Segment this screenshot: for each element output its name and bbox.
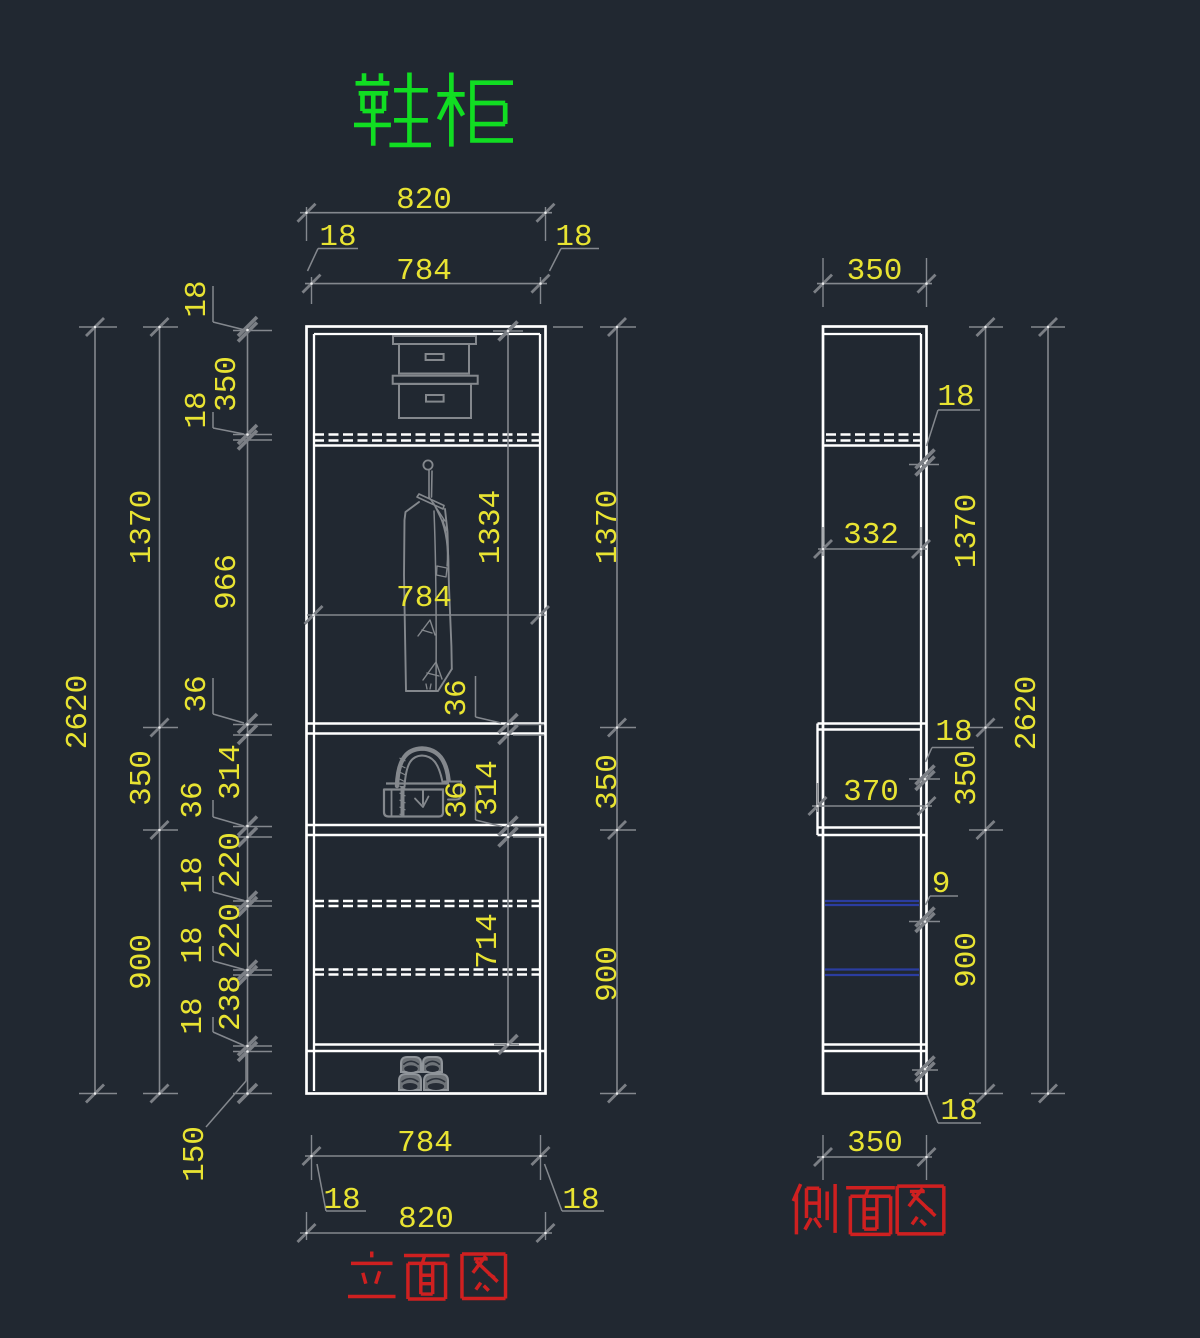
svg-text:370: 370 xyxy=(843,775,899,810)
svg-text:18: 18 xyxy=(176,997,211,1034)
svg-text:18: 18 xyxy=(176,856,211,893)
svg-text:332: 332 xyxy=(843,518,899,553)
svg-text:18: 18 xyxy=(940,1094,977,1129)
svg-text:36: 36 xyxy=(180,675,215,712)
svg-text:784: 784 xyxy=(396,581,452,616)
svg-text:714: 714 xyxy=(471,913,506,969)
svg-text:36: 36 xyxy=(440,679,475,716)
svg-text:820: 820 xyxy=(398,1202,454,1237)
svg-text:350: 350 xyxy=(950,750,985,806)
svg-text:350: 350 xyxy=(591,754,626,810)
svg-text:1370: 1370 xyxy=(950,494,985,568)
svg-text:18: 18 xyxy=(935,715,972,750)
svg-text:36: 36 xyxy=(441,781,476,818)
svg-text:350: 350 xyxy=(210,356,245,412)
svg-text:784: 784 xyxy=(397,1126,453,1161)
svg-text:820: 820 xyxy=(396,183,452,218)
svg-text:18: 18 xyxy=(323,1183,360,1218)
svg-text:900: 900 xyxy=(125,934,160,990)
svg-text:350: 350 xyxy=(847,1126,903,1161)
svg-text:2620: 2620 xyxy=(61,675,96,749)
svg-text:900: 900 xyxy=(950,932,985,988)
svg-text:350: 350 xyxy=(125,750,160,806)
svg-text:18: 18 xyxy=(180,391,215,428)
svg-text:1370: 1370 xyxy=(125,490,160,564)
svg-text:238: 238 xyxy=(214,975,249,1031)
svg-text:220: 220 xyxy=(214,832,249,888)
svg-text:36: 36 xyxy=(176,781,211,818)
svg-text:2620: 2620 xyxy=(1010,676,1045,750)
svg-text:1370: 1370 xyxy=(591,490,626,564)
svg-text:9: 9 xyxy=(932,867,951,902)
svg-text:314: 314 xyxy=(214,744,249,800)
svg-text:350: 350 xyxy=(847,254,903,289)
svg-text:220: 220 xyxy=(214,903,249,959)
svg-text:900: 900 xyxy=(591,946,626,1002)
svg-text:18: 18 xyxy=(562,1183,599,1218)
svg-text:150: 150 xyxy=(178,1126,213,1182)
svg-text:1334: 1334 xyxy=(474,490,509,564)
svg-text:314: 314 xyxy=(471,760,506,816)
svg-text:18: 18 xyxy=(180,280,215,317)
svg-text:18: 18 xyxy=(555,220,592,255)
svg-text:18: 18 xyxy=(319,220,356,255)
svg-text:966: 966 xyxy=(210,554,245,610)
svg-text:18: 18 xyxy=(937,380,974,415)
svg-text:784: 784 xyxy=(396,254,452,289)
svg-text:18: 18 xyxy=(176,926,211,963)
